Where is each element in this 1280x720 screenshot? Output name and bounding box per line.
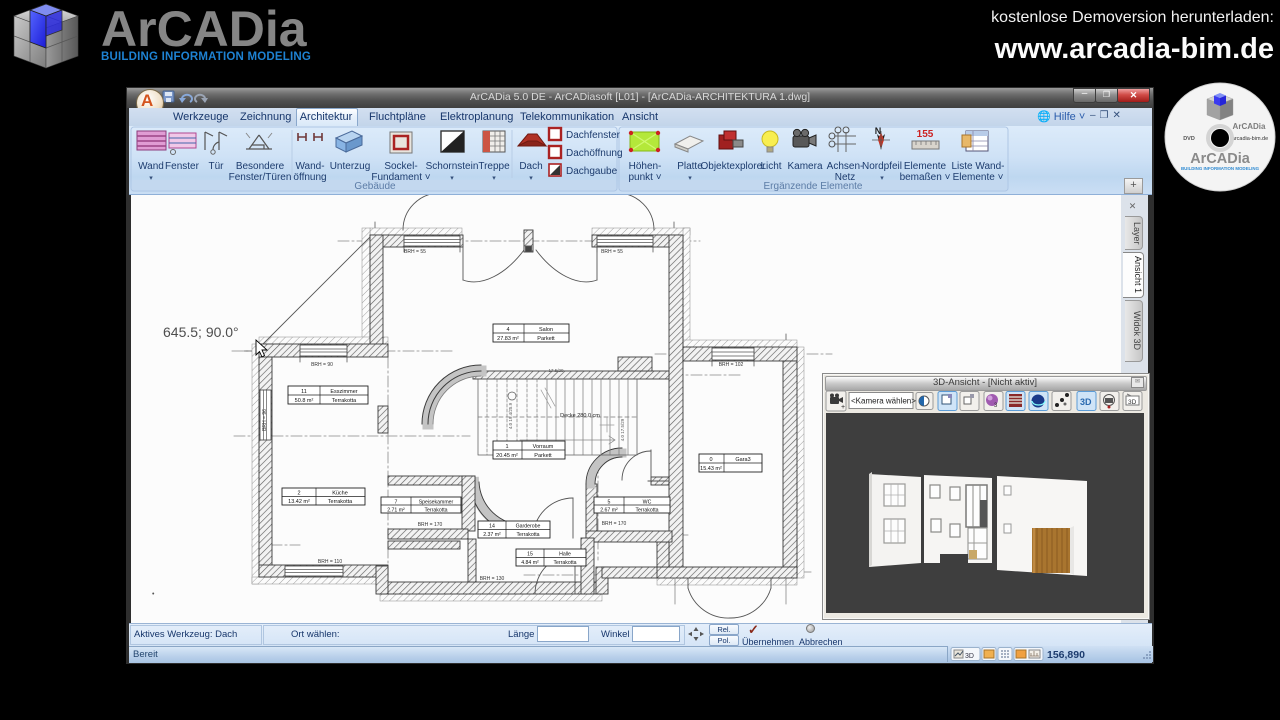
svg-text:•: • (152, 591, 155, 598)
svg-text:7: 7 (395, 500, 398, 506)
svg-text:17.5/29: 17.5/29 (548, 368, 564, 373)
svg-text:4.0 19.4/25.9: 4.0 19.4/25.9 (508, 402, 513, 429)
svg-text:27.83 m²: 27.83 m² (497, 336, 519, 342)
svg-text:Fenster: Fenster (165, 161, 200, 172)
svg-text:Tür: Tür (209, 161, 225, 172)
svg-text:4: 4 (506, 327, 509, 333)
svg-text:2.67 m²: 2.67 m² (600, 508, 618, 514)
svg-text:15: 15 (527, 552, 533, 558)
svg-text:arcadia-bim.de: arcadia-bim.de (1232, 136, 1268, 142)
svg-text:BRH = 170: BRH = 170 (602, 521, 627, 527)
svg-text:Besondere: Besondere (236, 161, 285, 172)
svg-text:öffnung: öffnung (293, 172, 326, 183)
svg-text:BRH = 90: BRH = 90 (311, 362, 333, 368)
svg-text:Parkett: Parkett (537, 336, 555, 342)
svg-text:Garderobe: Garderobe (516, 524, 541, 530)
svg-text:2.37 m²: 2.37 m² (483, 532, 501, 538)
svg-text:Wand-: Wand- (295, 161, 324, 172)
svg-text:Elemente: Elemente (904, 161, 947, 172)
svg-text:Objektexplorer: Objektexplorer (700, 161, 766, 172)
svg-text:645.5; 90.0°: 645.5; 90.0° (163, 324, 239, 340)
svg-text:Speisekammer: Speisekammer (419, 500, 454, 506)
svg-text:Dachfenster: Dachfenster (566, 130, 621, 141)
svg-text:11: 11 (301, 389, 307, 395)
svg-text:Wand: Wand (138, 161, 164, 172)
svg-text:3D: 3D (965, 653, 974, 660)
svg-text:ArCADia: ArCADia (1233, 122, 1266, 131)
svg-text:Terrakotta: Terrakotta (635, 508, 658, 514)
svg-text:Terrakotta: Terrakotta (516, 532, 539, 538)
svg-text:▾: ▾ (529, 175, 533, 182)
svg-text:Netz: Netz (835, 172, 856, 183)
svg-text:Liste Wand-: Liste Wand- (952, 161, 1005, 172)
svg-text:WC: WC (643, 500, 652, 506)
svg-text:Dachöffnung: Dachöffnung (566, 148, 623, 159)
svg-text:2.71 m²: 2.71 m² (387, 508, 405, 514)
svg-text:3D: 3D (1128, 399, 1137, 406)
svg-text:BRH = 55: BRH = 55 (601, 249, 623, 255)
svg-text:4.84 m²: 4.84 m² (521, 560, 539, 566)
svg-text:Schornstein: Schornstein (426, 161, 479, 172)
svg-text:20.45 m²: 20.45 m² (496, 453, 518, 459)
svg-text:Terrakotta: Terrakotta (424, 508, 447, 514)
svg-text:Nordpfeil: Nordpfeil (862, 161, 902, 172)
svg-text:Achsen-: Achsen- (827, 161, 864, 172)
svg-text:punkt ˅: punkt ˅ (628, 172, 661, 183)
svg-text:Licht: Licht (760, 161, 781, 172)
svg-text:BRH = 55: BRH = 55 (404, 249, 426, 255)
svg-text:50.8 m²: 50.8 m² (295, 398, 314, 404)
svg-text:Höhen-: Höhen- (629, 161, 662, 172)
svg-text:Terrakotta: Terrakotta (332, 398, 357, 404)
svg-text:155: 155 (917, 129, 934, 140)
svg-text:4.0 17.5/29: 4.0 17.5/29 (620, 418, 625, 441)
svg-text:Dachgaube: Dachgaube (566, 166, 618, 177)
svg-text:▾: ▾ (688, 175, 692, 182)
svg-text:Halle: Halle (559, 552, 571, 558)
svg-text:Parkett: Parkett (534, 453, 552, 459)
svg-text:▾: ▾ (149, 175, 153, 182)
svg-text:156,890: 156,890 (1047, 649, 1085, 661)
svg-text:+: + (841, 404, 845, 411)
svg-text:DVD: DVD (1183, 136, 1195, 142)
svg-text:2: 2 (297, 491, 300, 497)
svg-text:Unterzug: Unterzug (330, 161, 371, 172)
svg-text:Terrakotta: Terrakotta (553, 560, 576, 566)
svg-text:Treppe: Treppe (478, 161, 510, 172)
svg-text:Sockel-: Sockel- (384, 161, 417, 172)
svg-text:15.43 m²: 15.43 m² (700, 466, 722, 472)
svg-text:▾: ▾ (880, 175, 884, 182)
svg-text:BRH = 170: BRH = 170 (418, 522, 443, 528)
svg-text:BRH = 96: BRH = 96 (262, 409, 268, 431)
svg-text:Esszimmer: Esszimmer (330, 389, 357, 395)
svg-text:▾: ▾ (450, 175, 454, 182)
svg-text:13.42 m²: 13.42 m² (288, 499, 310, 505)
svg-text:14: 14 (489, 524, 495, 530)
svg-text:0: 0 (709, 457, 712, 463)
svg-text:1: 1 (505, 444, 508, 450)
svg-text:Platte: Platte (677, 161, 703, 172)
svg-text:▾: ▾ (492, 175, 496, 182)
svg-text:BRH = 102: BRH = 102 (719, 362, 744, 368)
svg-text:Küche: Küche (332, 491, 348, 497)
svg-text:Kamera: Kamera (787, 161, 822, 172)
svg-text:5: 5 (608, 500, 611, 506)
svg-text:Elemente ˅: Elemente ˅ (953, 172, 1004, 183)
svg-text:<Kamera wählen>: <Kamera wählen> (851, 397, 916, 406)
svg-text:Fundament ˅: Fundament ˅ (371, 172, 430, 183)
svg-text:Salon: Salon (539, 327, 553, 333)
svg-text:Decke 280.0 cm: Decke 280.0 cm (560, 413, 600, 419)
svg-text:Terrakotta: Terrakotta (328, 499, 353, 505)
svg-text:BRH = 110: BRH = 110 (318, 559, 342, 565)
svg-text:Vorraum: Vorraum (533, 444, 554, 450)
svg-text:Dach: Dach (519, 161, 542, 172)
svg-text:BUILDING INFORMATION MODELING: BUILDING INFORMATION MODELING (1181, 166, 1260, 171)
svg-text:Gara3: Gara3 (735, 457, 750, 463)
svg-text:bemaßen ˅: bemaßen ˅ (900, 172, 951, 183)
svg-text:ArCADia: ArCADia (1190, 151, 1251, 167)
svg-text:BRH = 130: BRH = 130 (480, 576, 505, 582)
svg-text:3D: 3D (1080, 397, 1092, 407)
svg-text:Fenster/Türen: Fenster/Türen (229, 172, 292, 183)
